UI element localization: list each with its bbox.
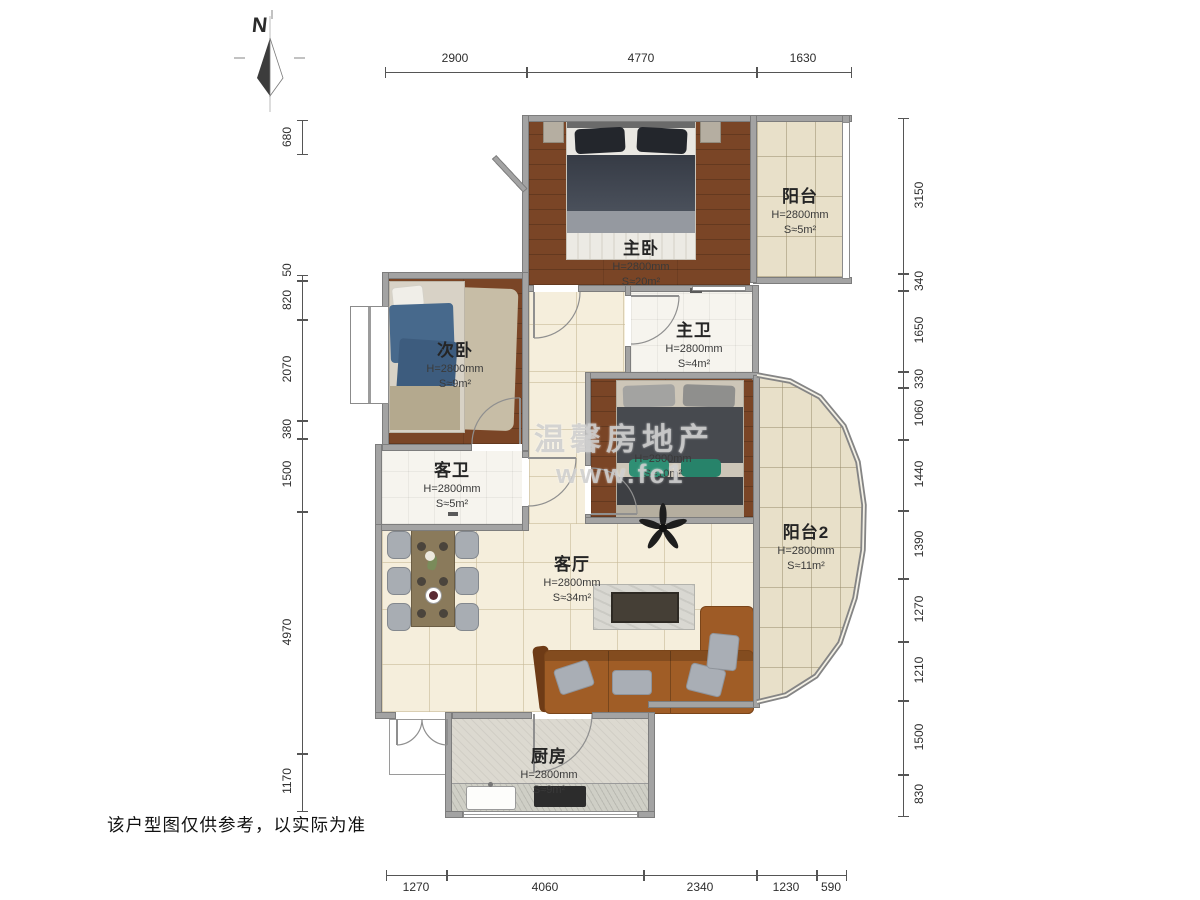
dim-label: 1060 bbox=[912, 400, 926, 427]
dining-chair bbox=[387, 603, 411, 631]
bedroom3-bed bbox=[616, 380, 744, 520]
dim-segment bbox=[898, 510, 909, 580]
dim-label: 1270 bbox=[403, 880, 430, 894]
place-setting bbox=[417, 542, 426, 551]
wall-segment bbox=[522, 272, 529, 451]
room-height: H=2800mm bbox=[612, 260, 669, 275]
room-label-second-bedroom: 次卧 H=2800mm S≈9m² bbox=[426, 340, 483, 391]
blanket bbox=[567, 211, 695, 233]
wall-segment bbox=[382, 444, 472, 451]
kitchen-sink bbox=[466, 786, 516, 810]
entry-porch bbox=[389, 719, 452, 775]
wall-segment bbox=[452, 712, 532, 719]
room-name: 阳台2 bbox=[777, 522, 834, 544]
dim-segment bbox=[898, 641, 909, 702]
dim-segment bbox=[297, 420, 308, 440]
dim-label: 1210 bbox=[912, 657, 926, 684]
dim-label: 340 bbox=[912, 271, 926, 291]
wall-segment bbox=[445, 712, 452, 818]
blanket bbox=[390, 386, 460, 430]
dim-segment bbox=[898, 118, 909, 275]
place-setting bbox=[417, 577, 426, 586]
dim-segment bbox=[898, 439, 909, 512]
hallway-floor bbox=[529, 372, 585, 524]
duvet bbox=[567, 155, 695, 211]
dining-chair bbox=[455, 567, 479, 595]
room-label-guest-bath: 客卫 H=2800mm S≈5m² bbox=[423, 460, 480, 511]
dim-label: 1630 bbox=[790, 51, 817, 65]
bay-window bbox=[350, 306, 389, 404]
flower-bloom bbox=[425, 551, 435, 561]
room-name: 次卧 bbox=[426, 340, 483, 362]
room-height: H=2900mm bbox=[634, 452, 691, 467]
room-name: 主卧 bbox=[612, 238, 669, 260]
north-arrow-icon bbox=[234, 10, 305, 112]
place-setting bbox=[439, 609, 448, 618]
room-area: S≈20m² bbox=[612, 275, 669, 290]
dim-label: 1650 bbox=[912, 317, 926, 344]
dim-label: 3150 bbox=[912, 182, 926, 209]
pillow bbox=[683, 384, 736, 408]
wall-segment bbox=[445, 811, 463, 818]
dim-label: 1230 bbox=[773, 880, 800, 894]
room-height: H=2800mm bbox=[777, 544, 834, 559]
dim-segment bbox=[898, 700, 909, 776]
room-name: 客厅 bbox=[543, 554, 600, 576]
wall-segment bbox=[753, 375, 760, 708]
faucet bbox=[488, 782, 493, 787]
dim-segment bbox=[297, 511, 308, 755]
room-area: S≈11m² bbox=[777, 559, 834, 574]
room-name: 阳台 bbox=[771, 186, 828, 208]
dim-label: 820 bbox=[280, 290, 294, 310]
dim-label: 2070 bbox=[280, 356, 294, 383]
dim-label: 680 bbox=[280, 127, 294, 147]
dim-label: 2900 bbox=[442, 51, 469, 65]
wall-segment bbox=[585, 517, 760, 524]
dining-table bbox=[411, 528, 455, 627]
floor-plan-page: N bbox=[0, 0, 1200, 900]
dim-label: 590 bbox=[821, 880, 841, 894]
room-height: H=2800mm bbox=[543, 576, 600, 591]
room-label-balcony: 阳台 H=2800mm S≈5m² bbox=[771, 186, 828, 237]
dining-chair bbox=[387, 531, 411, 559]
sofa-pillow bbox=[706, 633, 740, 672]
kitchen-window bbox=[463, 811, 638, 818]
room-name: 主卫 bbox=[665, 320, 722, 342]
room-area: S≈34m² bbox=[543, 591, 600, 606]
nightstand bbox=[543, 121, 564, 143]
dim-segment bbox=[898, 578, 909, 643]
north-label: N bbox=[251, 14, 269, 38]
bath-vent bbox=[448, 512, 458, 516]
room-height: H=2800mm bbox=[423, 482, 480, 497]
room-label-bedroom3: H=2900mm S≈10m² bbox=[634, 452, 691, 481]
room-area: S≈5m² bbox=[771, 223, 828, 238]
place-setting bbox=[439, 542, 448, 551]
fruit-plate bbox=[425, 587, 442, 604]
wall-segment bbox=[375, 444, 382, 531]
dim-label: 830 bbox=[912, 784, 926, 804]
wall-segment bbox=[522, 451, 529, 458]
room-name: 厨房 bbox=[520, 746, 577, 768]
place-setting bbox=[439, 577, 448, 586]
wall-segment bbox=[648, 712, 655, 818]
dim-segment bbox=[297, 120, 308, 155]
room-area: S≈9m² bbox=[520, 783, 577, 798]
wall-segment bbox=[753, 277, 852, 284]
dim-label: 1440 bbox=[912, 461, 926, 488]
dim-segment bbox=[297, 438, 308, 513]
wall-segment bbox=[522, 506, 529, 531]
dim-label: 330 bbox=[912, 369, 926, 389]
dim-label: 4970 bbox=[280, 619, 294, 646]
pillow bbox=[636, 127, 687, 155]
dim-label: 380 bbox=[280, 419, 294, 439]
dim-label: 1170 bbox=[280, 768, 294, 794]
dim-label: 4770 bbox=[628, 51, 655, 65]
wall-segment bbox=[375, 524, 382, 719]
pillow bbox=[574, 127, 625, 155]
wall-segment bbox=[585, 372, 591, 466]
room-area: S≈4m² bbox=[665, 357, 722, 372]
dim-label: 4060 bbox=[532, 880, 559, 894]
dim-segment bbox=[898, 387, 909, 441]
dim-segment bbox=[297, 280, 308, 321]
room-name: 客卫 bbox=[423, 460, 480, 482]
room-label-master-bedroom: 主卧 H=2800mm S≈20m² bbox=[612, 238, 669, 289]
dining-chair bbox=[455, 531, 479, 559]
wall-segment bbox=[382, 272, 529, 279]
wall-segment bbox=[375, 524, 529, 531]
dim-label: 1500 bbox=[280, 461, 294, 488]
place-setting bbox=[417, 609, 426, 618]
dim-segment bbox=[297, 753, 308, 812]
duvet bbox=[617, 477, 743, 505]
wall-segment bbox=[585, 372, 759, 379]
room-label-balcony2: 阳台2 H=2800mm S≈11m² bbox=[777, 522, 834, 573]
dim-label: 2340 bbox=[687, 880, 714, 894]
dining-chair bbox=[387, 567, 411, 595]
room-label-master-bath: 主卫 H=2800mm S≈4m² bbox=[665, 320, 722, 371]
wall-segment bbox=[752, 285, 759, 380]
master-bath-window bbox=[692, 286, 746, 291]
room-area: S≈5m² bbox=[423, 497, 480, 512]
wall-segment bbox=[648, 701, 760, 708]
room-label-kitchen: 厨房 H=2800mm S≈9m² bbox=[520, 746, 577, 797]
wall-segment bbox=[375, 712, 396, 719]
dim-label: 50 bbox=[280, 263, 294, 276]
disclaimer-text: 该户型图仅供参考，以实际为准 bbox=[107, 812, 366, 837]
hallway-floor bbox=[529, 292, 625, 372]
wall-segment bbox=[522, 115, 529, 292]
dim-segment bbox=[898, 290, 909, 373]
dim-segment bbox=[898, 774, 909, 817]
dim-segment bbox=[385, 67, 528, 78]
room-height: H=2800mm bbox=[426, 362, 483, 377]
dim-label: 1390 bbox=[912, 531, 926, 558]
wall-segment bbox=[522, 115, 852, 122]
room-height: H=2800mm bbox=[771, 208, 828, 223]
balcony-window bbox=[842, 122, 850, 279]
dim-label: 1500 bbox=[912, 724, 926, 751]
nightstand bbox=[700, 121, 721, 143]
wall-segment bbox=[592, 712, 655, 719]
dining-chair bbox=[455, 603, 479, 631]
room-area: S≈9m² bbox=[426, 377, 483, 392]
sofa-pillow bbox=[612, 670, 652, 695]
room-height: H=2800mm bbox=[520, 768, 577, 783]
dim-segment bbox=[297, 319, 308, 422]
dim-segment bbox=[526, 67, 758, 78]
room-label-living: 客厅 H=2800mm S≈34m² bbox=[543, 554, 600, 605]
pillow bbox=[623, 384, 676, 408]
room-area: S≈10m² bbox=[634, 467, 691, 482]
wall-segment bbox=[638, 811, 655, 818]
dim-segment bbox=[756, 67, 852, 78]
room-height: H=2800mm bbox=[665, 342, 722, 357]
wall-segment bbox=[750, 115, 757, 283]
dim-label: 1270 bbox=[912, 596, 926, 623]
tv bbox=[611, 592, 679, 623]
